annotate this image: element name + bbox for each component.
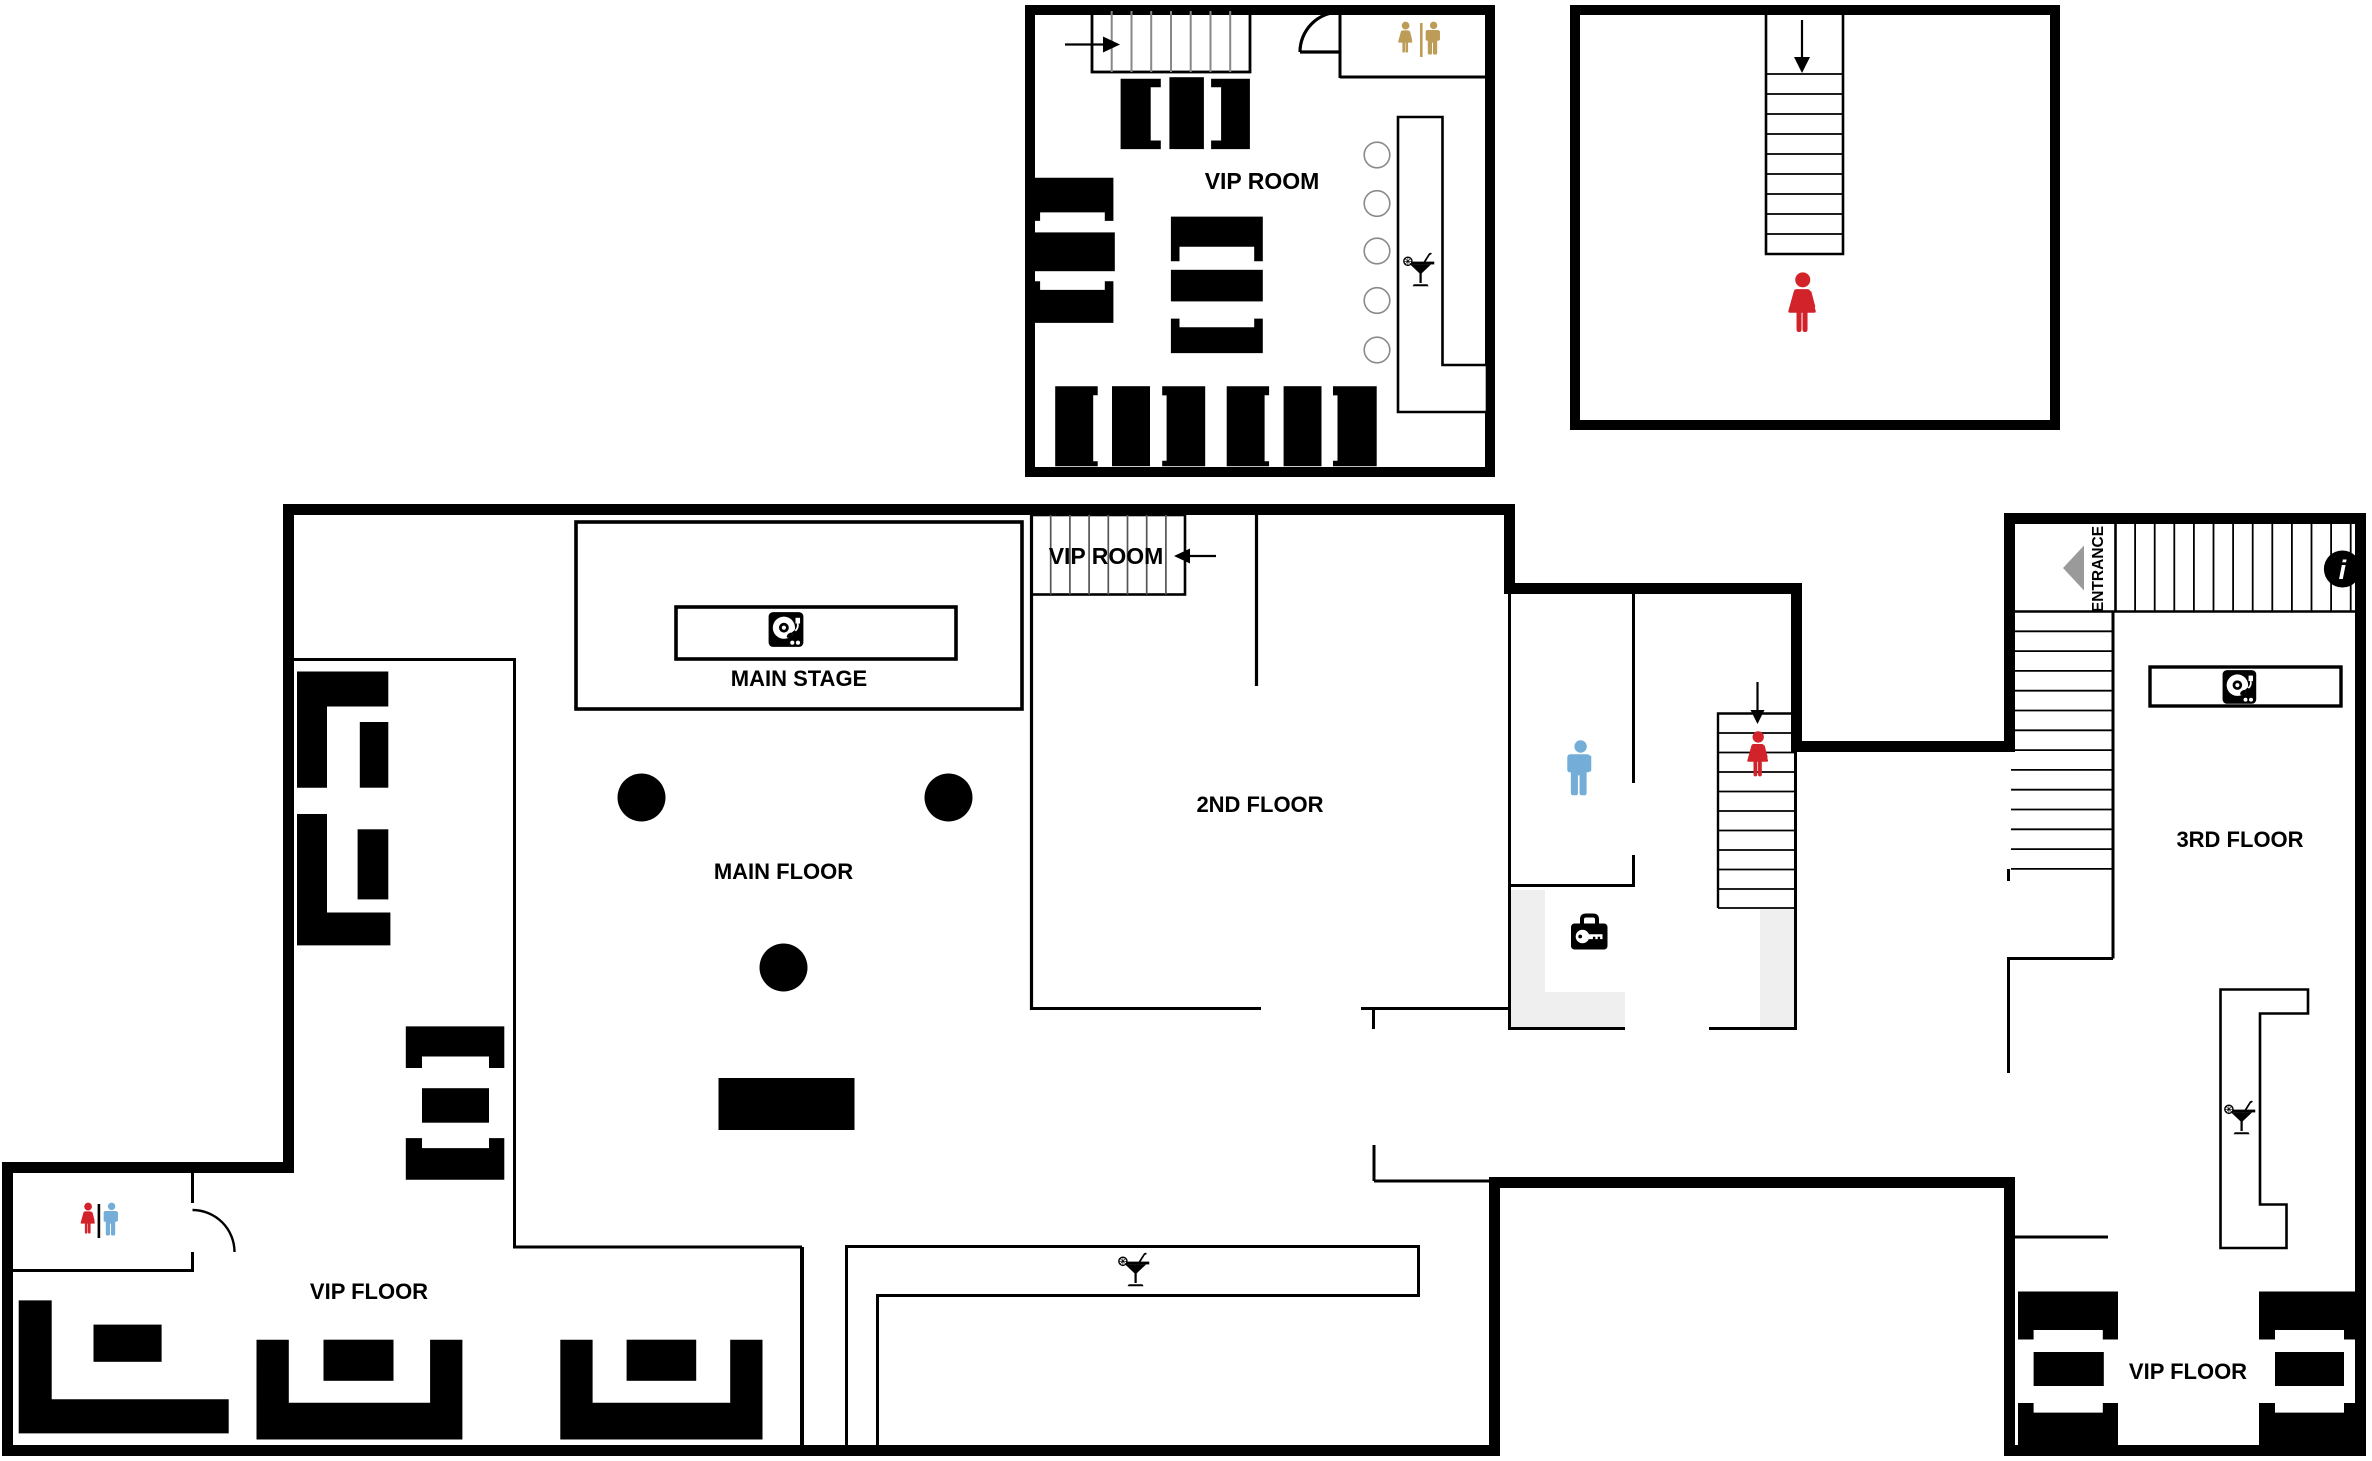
svg-text:VIP ROOM: VIP ROOM [1049, 543, 1164, 569]
svg-text:VIP FLOOR: VIP FLOOR [2129, 1359, 2247, 1384]
svg-text:MAIN FLOOR: MAIN FLOOR [714, 859, 853, 884]
svg-text:VIP ROOM: VIP ROOM [1205, 168, 1320, 194]
svg-text:3RD FLOOR: 3RD FLOOR [2176, 827, 2303, 852]
svg-text:2ND FLOOR: 2ND FLOOR [1196, 792, 1323, 817]
svg-text:VIP FLOOR: VIP FLOOR [310, 1279, 428, 1304]
svg-text:ENTRANCE: ENTRANCE [2090, 526, 2107, 612]
svg-text:i: i [2339, 555, 2347, 585]
svg-text:MAIN STAGE: MAIN STAGE [731, 666, 867, 691]
